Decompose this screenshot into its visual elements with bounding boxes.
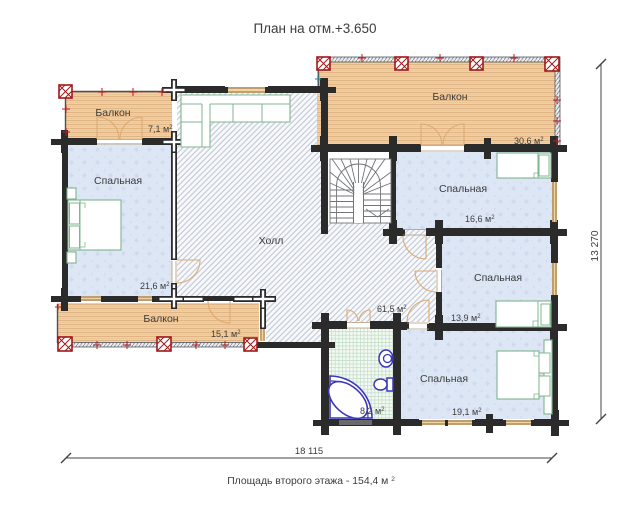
svg-text:Спальная: Спальная: [94, 175, 142, 187]
svg-text:30,6 м2: 30,6 м2: [514, 136, 544, 146]
svg-text:18 115: 18 115: [295, 446, 323, 457]
svg-text:Спальная: Спальная: [420, 373, 468, 385]
svg-text:Спальная: Спальная: [474, 272, 522, 284]
svg-text:16,6 м2: 16,6 м2: [465, 214, 495, 224]
svg-text:План на отм.+3.650: План на отм.+3.650: [253, 21, 376, 36]
svg-text:Спальная: Спальная: [439, 183, 487, 195]
svg-text:19,1 м2: 19,1 м2: [452, 407, 482, 417]
svg-text:21,6 м2: 21,6 м2: [140, 281, 170, 291]
svg-text:15,1 м2: 15,1 м2: [211, 329, 241, 339]
svg-text:Площадь второго этажа - 154,4: Площадь второго этажа - 154,4 м 2: [227, 476, 395, 487]
svg-text:13,9 м2: 13,9 м2: [451, 313, 481, 323]
svg-text:Балкон: Балкон: [143, 313, 178, 325]
svg-text:61,5 м2: 61,5 м2: [377, 304, 407, 314]
svg-text:Балкон: Балкон: [432, 91, 467, 103]
svg-text:Холл: Холл: [259, 235, 284, 247]
svg-text:13 270: 13 270: [590, 230, 601, 261]
svg-text:Балкон: Балкон: [95, 107, 130, 119]
